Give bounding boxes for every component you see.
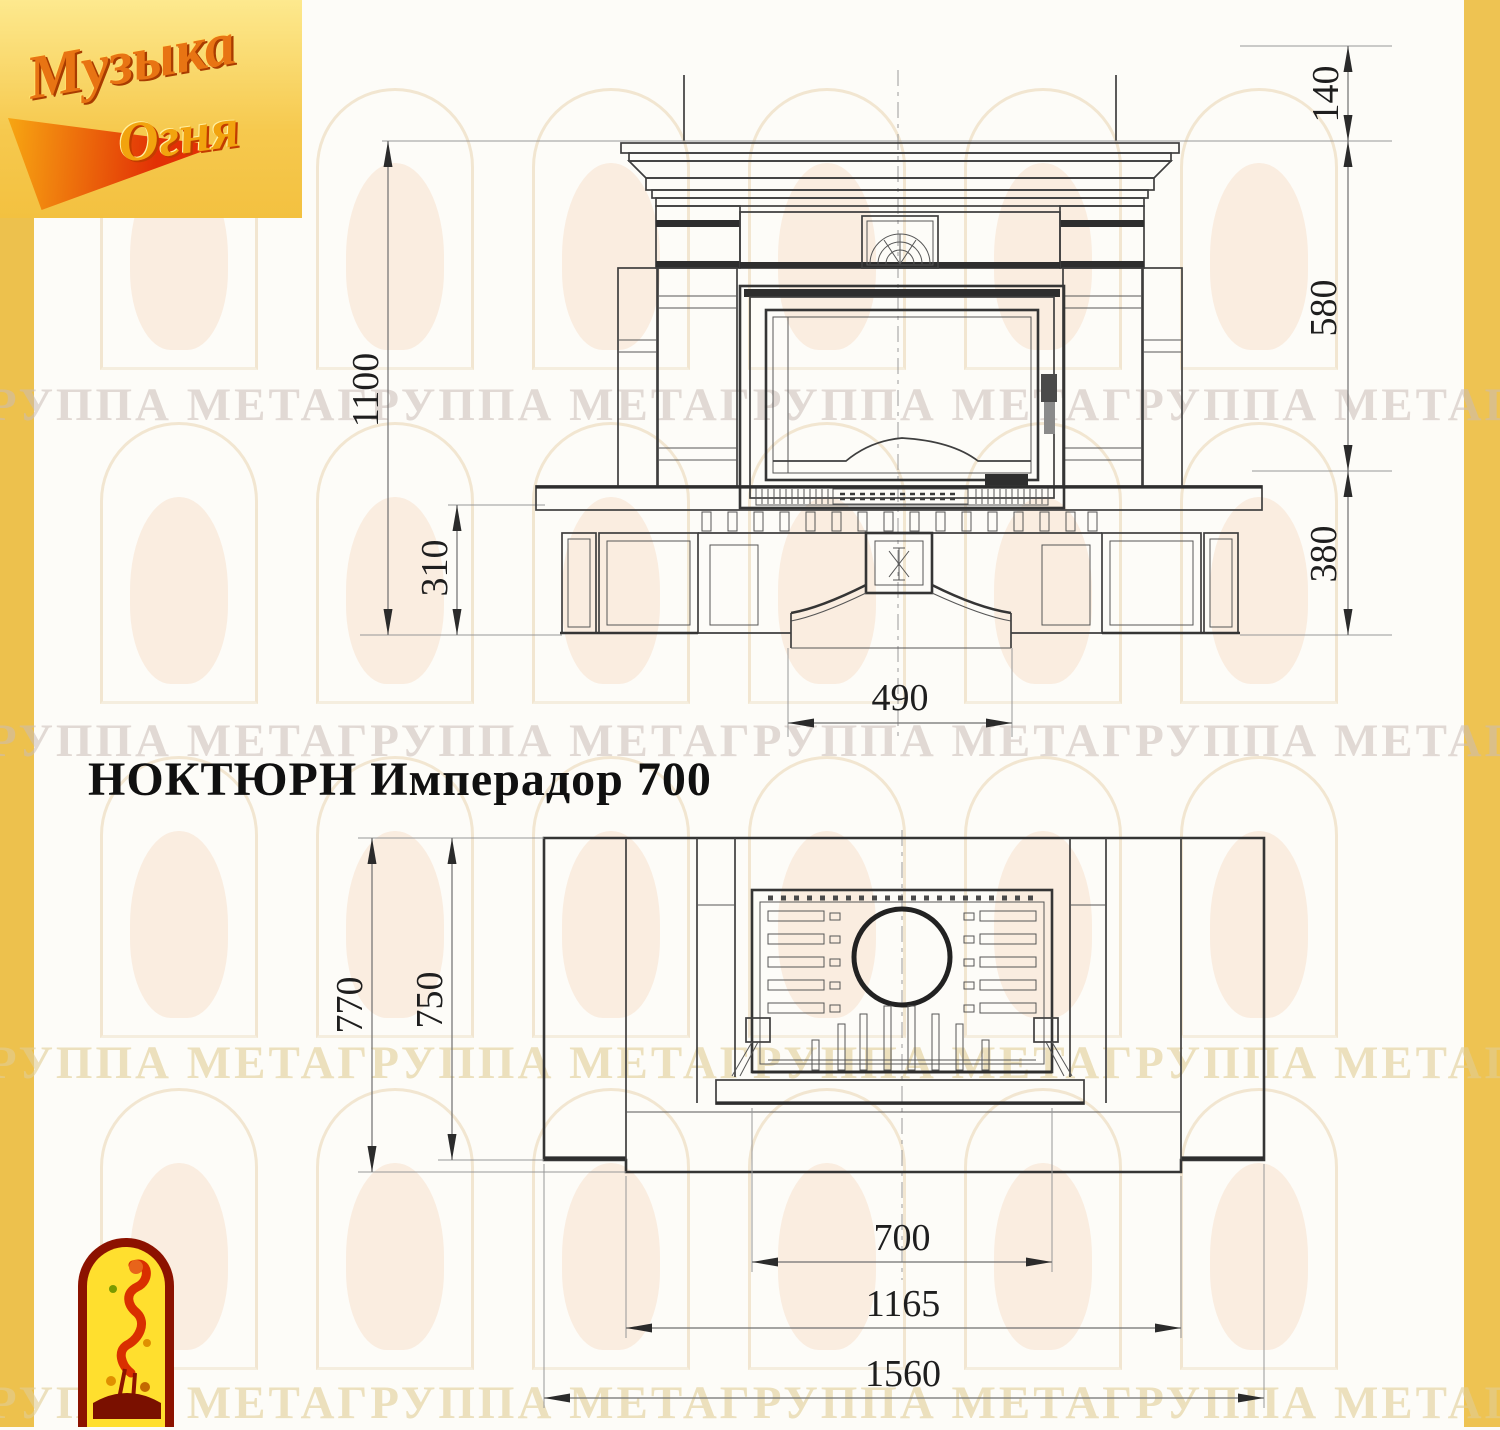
firebox-door	[740, 286, 1064, 508]
dim-insert-width: 700	[874, 1217, 931, 1259]
dim-firebox-zone: 580	[1303, 280, 1345, 337]
door-handle	[1041, 374, 1057, 402]
dim-total-depth: 770	[329, 977, 371, 1034]
mantel-shelf	[621, 143, 1179, 206]
front-dimensions: 1100 310 140 580 380 490	[345, 46, 1348, 723]
dim-body-depth: 750	[409, 972, 451, 1029]
keystone	[866, 533, 932, 593]
plan-extension-lines	[358, 838, 1264, 1408]
dim-opening-width: 490	[872, 677, 929, 719]
frieze	[656, 206, 1144, 268]
plan-bench	[716, 1080, 1084, 1104]
base	[560, 533, 1240, 648]
firebird-icon	[87, 1247, 167, 1419]
brand-logo: Музыка Огня	[0, 0, 302, 218]
chimney-breast	[684, 75, 1116, 141]
door-handle-lever	[1044, 402, 1055, 434]
plan-view: 770 750 700 1165 1560	[329, 830, 1264, 1408]
log-retainer-curve	[773, 438, 1031, 461]
side-columns	[618, 268, 1182, 487]
dim-base-height: 380	[1303, 526, 1345, 583]
dim-top-offset: 140	[1305, 66, 1347, 123]
dim-inner-width: 1165	[866, 1283, 941, 1325]
dim-total-height: 1100	[345, 353, 387, 428]
dim-total-width: 1560	[865, 1353, 941, 1395]
dim-hearth-height: 310	[414, 540, 456, 597]
baluster-strip	[698, 512, 1102, 533]
page-title: НОКТЮРН Имперадор 700	[88, 752, 712, 807]
front-view: 1100 310 140 580 380 490	[345, 46, 1392, 742]
firebird-emblem	[78, 1238, 174, 1427]
shell-ornament	[862, 216, 938, 268]
ash-lip	[985, 474, 1028, 487]
logo-word-2: Огня	[114, 96, 243, 176]
arch-curve	[791, 585, 1011, 613]
plan-dimensions: 770 750 700 1165 1560	[329, 838, 1264, 1398]
air-vent-grille	[756, 488, 1048, 505]
